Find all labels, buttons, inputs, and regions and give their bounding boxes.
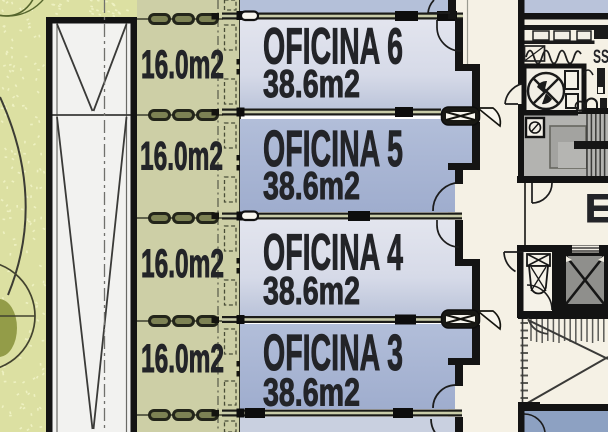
svg-text:ES: ES	[585, 187, 608, 231]
svg-text:16.0m2: 16.0m2	[141, 242, 224, 286]
svg-text:SS: SS	[593, 47, 608, 68]
svg-text:16.0m2: 16.0m2	[141, 337, 224, 381]
svg-text:16.0m2: 16.0m2	[141, 43, 224, 87]
svg-text:38.6m2: 38.6m2	[263, 372, 360, 415]
svg-text:38.6m2: 38.6m2	[263, 270, 360, 313]
svg-text:16.0m2: 16.0m2	[140, 135, 223, 179]
svg-text:38.6m2: 38.6m2	[263, 165, 360, 208]
svg-text:38.6m2: 38.6m2	[263, 63, 360, 106]
